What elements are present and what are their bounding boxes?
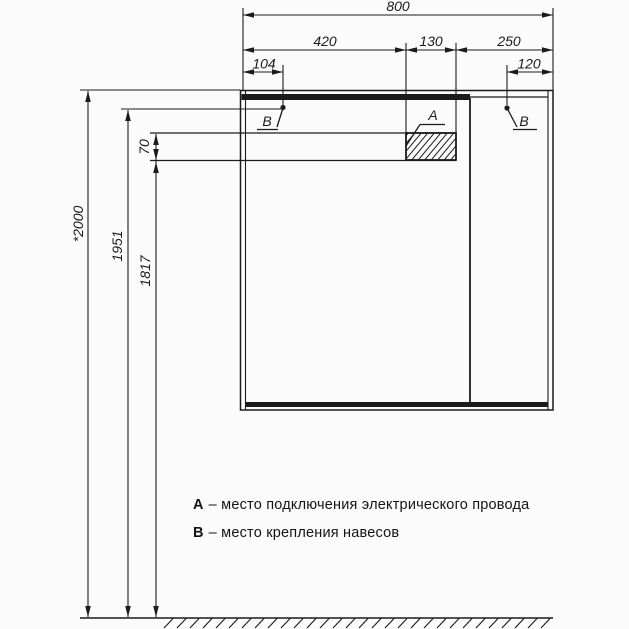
floor (80, 618, 553, 628)
dim-120-label: 120 (517, 56, 541, 72)
dim-104-label: 104 (252, 56, 276, 72)
marker-b-right-label: B (519, 113, 528, 129)
top-dimensions (243, 8, 553, 133)
dim-2000-label: *2000 (70, 205, 86, 242)
cabinet-outline (241, 91, 554, 411)
legend-item-b: В– место крепления навесов (193, 525, 399, 541)
cabinet-top-panel (242, 94, 471, 100)
dim-1951-label: 1951 (109, 230, 125, 261)
legend-desc-a: – место подключения электрического прово… (209, 497, 530, 513)
technical-drawing-sheet: 800 420 130 250 104 120 *2000 1951 1817 … (0, 0, 629, 629)
marker-b-left-label: B (262, 113, 271, 129)
dim-70-label: 70 (136, 139, 152, 155)
dim-420-label: 420 (313, 33, 337, 49)
floor-hatching (164, 619, 550, 629)
marker-a-label: A (427, 107, 437, 123)
cabinet-outer-box (241, 91, 554, 411)
leader-b-right (507, 108, 517, 127)
legend-desc-b: – место крепления навесов (209, 525, 400, 541)
lamp-band (150, 131, 475, 162)
dim-130-label: 130 (419, 33, 443, 49)
marker-leaders (257, 105, 537, 146)
legend-term-b: В (193, 525, 204, 541)
legend-item-a: А– место подключения электрического пров… (193, 497, 529, 513)
dim-250-label: 250 (496, 33, 521, 49)
dim-1817-label: 1817 (137, 254, 153, 286)
legend-term-a: А (193, 497, 204, 513)
leader-b-left (277, 108, 283, 127)
dim-800-label: 800 (386, 0, 410, 14)
cabinet-bottom-panel (246, 402, 549, 407)
